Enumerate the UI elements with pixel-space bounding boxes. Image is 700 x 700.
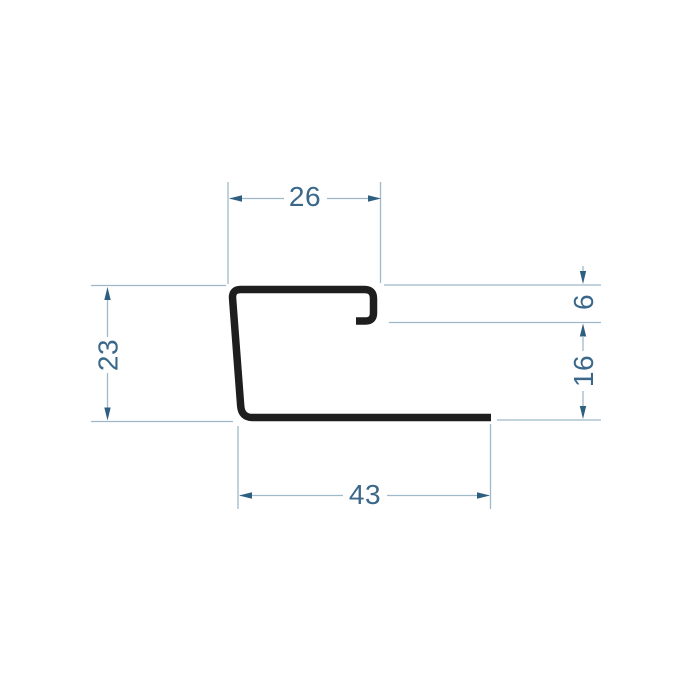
dim-right-lower-height-label: 16	[568, 355, 599, 387]
dim-lip-drop-label: 6	[568, 294, 599, 310]
dim-top-width-arrow-left-icon	[229, 195, 242, 201]
dim-bottom-width: 43	[238, 424, 491, 510]
dim-top-width-arrow-right-icon	[368, 195, 381, 201]
dim-bottom-width-arrow-left-icon	[239, 492, 252, 498]
dim-lip-drop: 6	[384, 266, 601, 323]
drawing-canvas: 26 23 6 16	[0, 0, 700, 700]
profile-drawing-svg: 26 23 6 16	[0, 0, 700, 700]
profile-outline-group	[233, 290, 492, 418]
dim-left-height-arrow-up-icon	[104, 287, 110, 300]
dim-left-height-arrow-down-icon	[104, 408, 110, 421]
profile-outline	[233, 290, 492, 418]
dim-right-lower-height: 16	[497, 324, 601, 421]
dim-bottom-width-label: 43	[349, 479, 381, 510]
dim-left-height: 23	[91, 286, 233, 422]
dim-right-lower-height-arrow-down-icon	[580, 406, 586, 419]
dim-top-width-label: 26	[289, 181, 321, 212]
dim-left-height-label: 23	[93, 339, 124, 371]
dim-right-lower-height-arrow-up-icon	[580, 324, 586, 337]
dim-lip-drop-arrow-down-icon	[580, 271, 586, 284]
dim-top-width: 26	[228, 181, 381, 284]
dim-bottom-width-arrow-right-icon	[477, 492, 490, 498]
